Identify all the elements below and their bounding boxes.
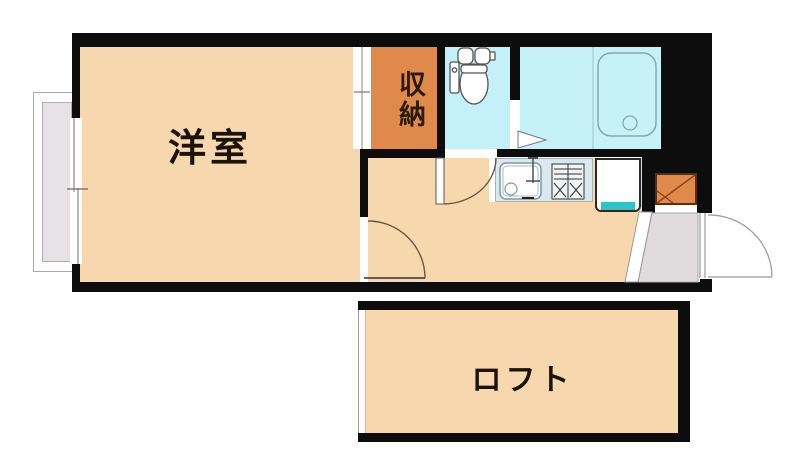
floor-plan: 洋室 収納 ロフト: [0, 0, 800, 476]
wall-bottom: [72, 282, 712, 292]
wall-under-storage: [360, 149, 445, 158]
entrance-threshold: [655, 205, 697, 215]
laundry-pan-accent: [601, 202, 635, 210]
kitchen-counter: [495, 158, 593, 202]
door-arc-icon: [708, 215, 772, 277]
label-western-room: 洋室: [90, 117, 330, 172]
wall-room-hall: [360, 158, 368, 217]
loft-open-edge: [358, 310, 366, 433]
balcony-floor: [42, 102, 72, 262]
loft-wall-bottom: [358, 433, 690, 442]
wall-shoebox-right: [697, 175, 712, 213]
room-door-opening: [360, 217, 368, 282]
window-opening: [70, 118, 82, 264]
wall-shoebox-left: [642, 175, 655, 213]
wall-right-block: [661, 33, 712, 175]
wall-under-bath: [497, 149, 661, 157]
wall-toilet-bath: [510, 47, 520, 100]
wall-storage-toilet: [437, 47, 445, 149]
shoe-cabinet-icon: [655, 173, 697, 205]
loft-wall-top: [358, 301, 690, 310]
entrance-floor: [638, 213, 698, 282]
label-storage: 収納: [390, 60, 429, 140]
closet-sliding-door: [353, 47, 371, 149]
entrance-door-opening: [698, 213, 712, 279]
loft-wall-right: [678, 301, 690, 442]
wall-left-upper: [72, 47, 80, 118]
wall-top: [72, 33, 712, 47]
wall-right-bottom-corner: [700, 277, 712, 292]
bath-doorway: [510, 100, 520, 149]
room-bath: [520, 47, 661, 149]
room-toilet: [445, 47, 510, 149]
label-loft: ロフト: [425, 355, 620, 399]
